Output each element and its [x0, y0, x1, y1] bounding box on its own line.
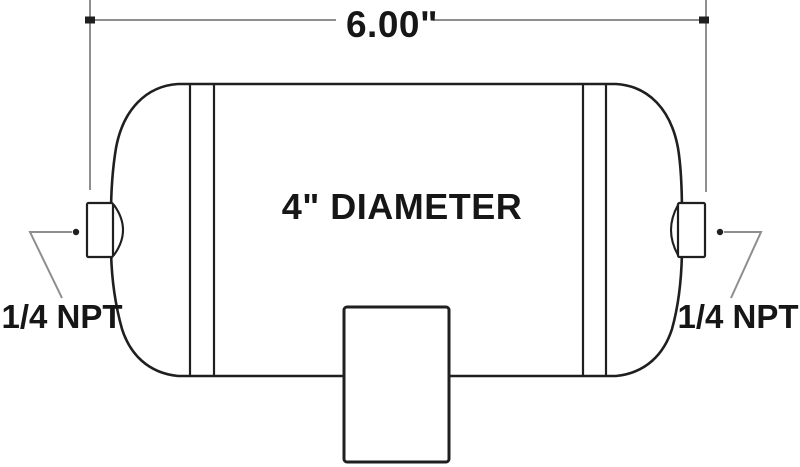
left-leader-dot	[73, 229, 79, 235]
diagram-canvas: 6.00" 4" DIAMETER 1/4 NPT 1/4 NPT	[0, 0, 800, 467]
dimension-tick-right	[699, 17, 709, 24]
left-port-label: 1/4 NPT	[1, 298, 122, 335]
left-port-leader-line	[30, 232, 72, 298]
dimension-tick-left	[85, 17, 95, 24]
air-tank-technical-drawing: 6.00" 4" DIAMETER 1/4 NPT 1/4 NPT	[0, 0, 800, 467]
left-port-dome-arc	[114, 205, 123, 255]
right-port-leader-line	[724, 232, 761, 298]
left-port-fitting	[87, 203, 113, 257]
length-dimension-label: 6.00"	[346, 4, 438, 45]
right-leader-dot	[717, 229, 723, 235]
right-port-fitting	[678, 203, 705, 257]
tank-linework	[87, 84, 705, 462]
diameter-label: 4" DIAMETER	[282, 186, 523, 227]
bottom-port-boss	[344, 307, 449, 462]
right-port-label: 1/4 NPT	[677, 298, 798, 335]
